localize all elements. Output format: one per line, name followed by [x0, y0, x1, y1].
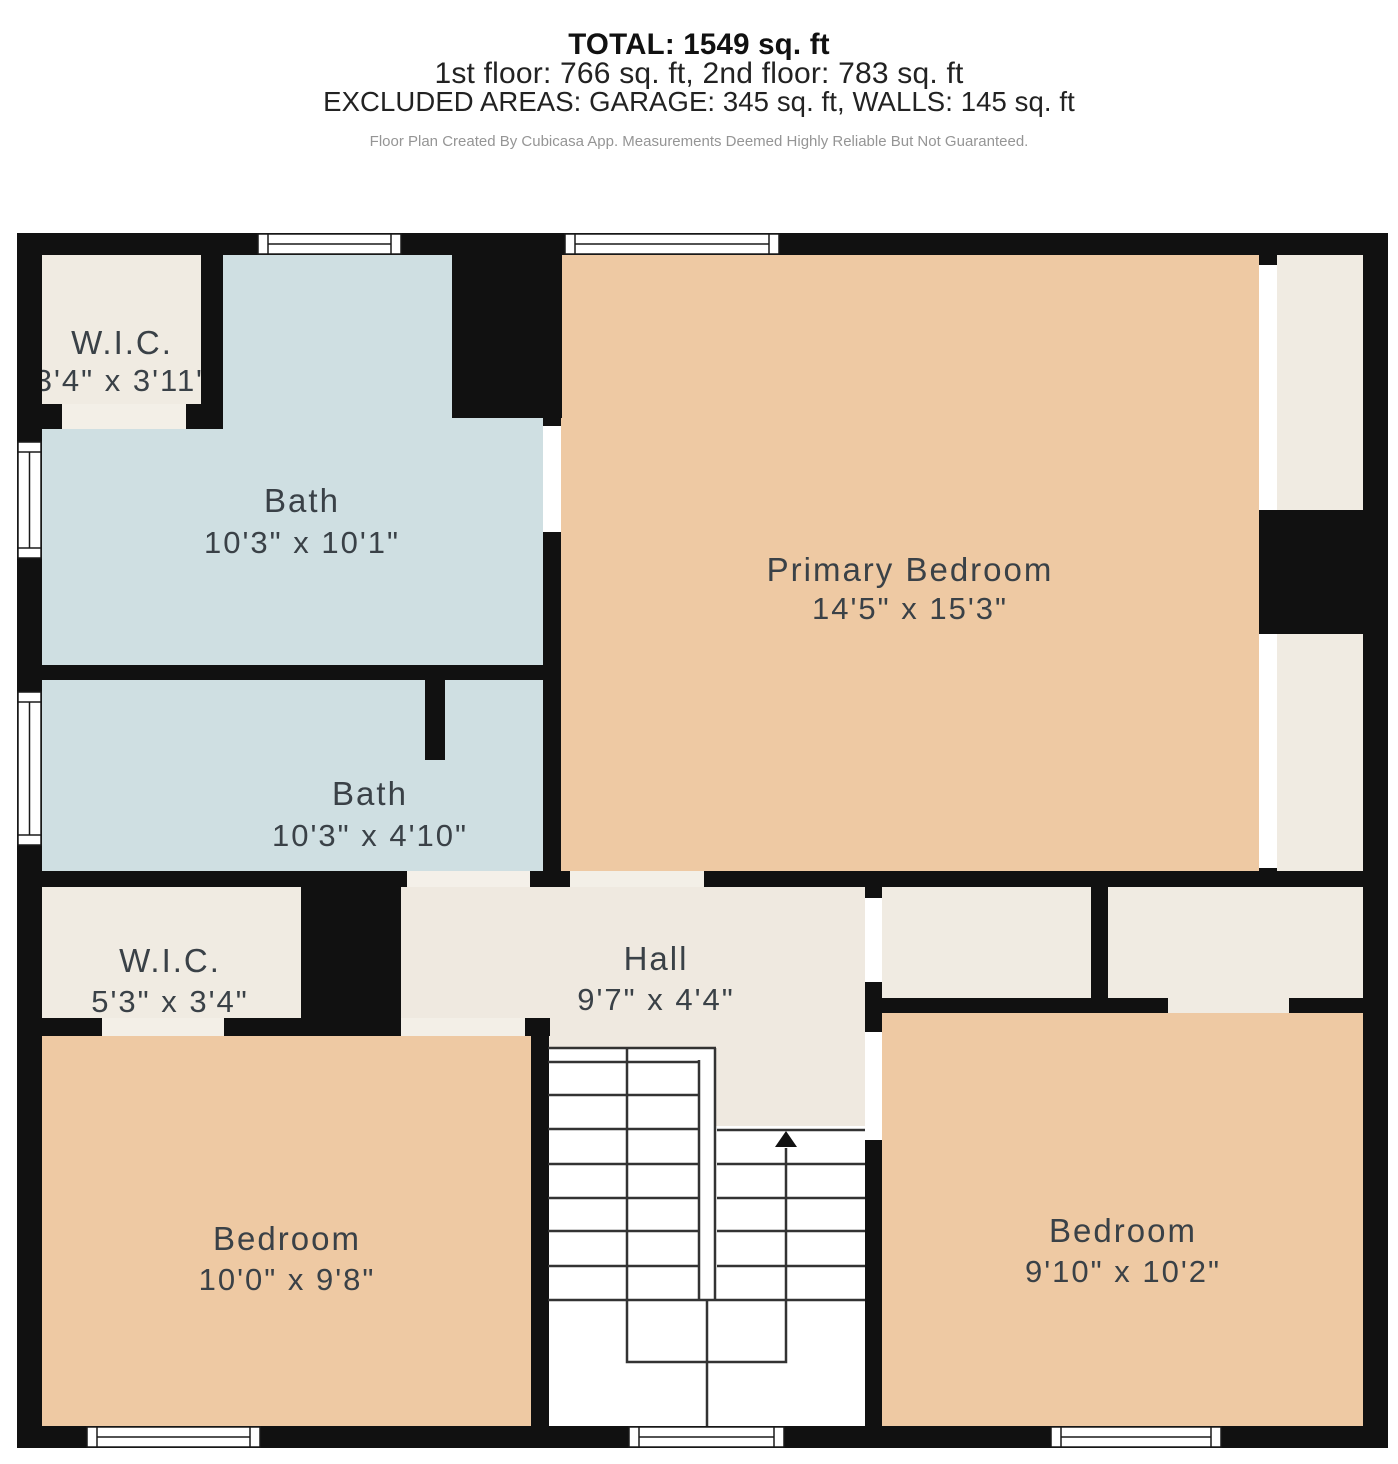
svg-text:3'4" x 3'11": 3'4" x 3'11" — [35, 363, 209, 398]
svg-text:Bedroom: Bedroom — [213, 1220, 361, 1257]
svg-text:Primary Bedroom: Primary Bedroom — [767, 551, 1054, 588]
svg-text:W.I.C.: W.I.C. — [119, 942, 221, 979]
svg-text:W.I.C.: W.I.C. — [71, 324, 173, 361]
svg-text:Bath: Bath — [332, 775, 408, 812]
svg-text:10'3" x 4'10": 10'3" x 4'10" — [272, 818, 468, 853]
svg-text:EXCLUDED AREAS: GARAGE: 345 sq: EXCLUDED AREAS: GARAGE: 345 sq. ft, WALL… — [323, 86, 1075, 117]
svg-text:Hall: Hall — [624, 940, 689, 977]
svg-text:5'3" x 3'4": 5'3" x 3'4" — [91, 984, 249, 1019]
svg-text:Bath: Bath — [264, 482, 340, 519]
svg-text:Bedroom: Bedroom — [1049, 1212, 1197, 1249]
svg-text:10'0" x 9'8": 10'0" x 9'8" — [199, 1262, 376, 1297]
svg-text:9'7" x 4'4": 9'7" x 4'4" — [577, 982, 735, 1017]
svg-text:10'3" x 10'1": 10'3" x 10'1" — [204, 525, 400, 560]
svg-text:14'5" x 15'3": 14'5" x 15'3" — [812, 591, 1008, 626]
svg-text:Floor Plan Created By Cubicasa: Floor Plan Created By Cubicasa App. Meas… — [370, 133, 1029, 150]
svg-text:9'10" x 10'2": 9'10" x 10'2" — [1025, 1254, 1221, 1289]
